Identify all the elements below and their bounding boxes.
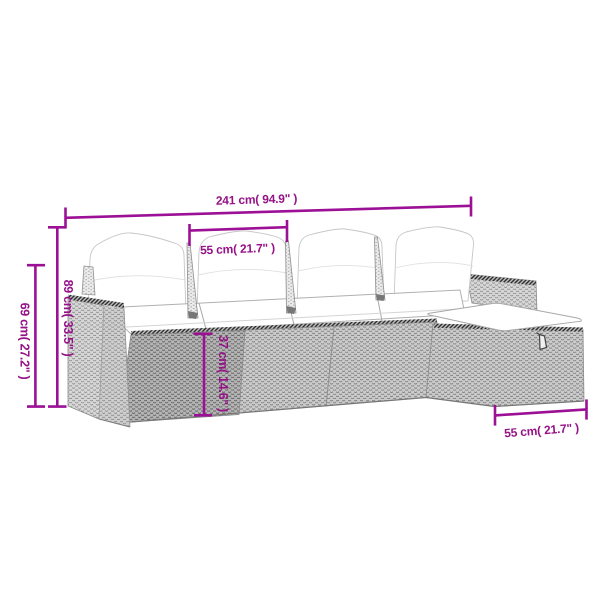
svg-text:241 cm( 94.9" ): 241 cm( 94.9" )	[216, 191, 298, 207]
svg-text:37 cm( 14.6" ): 37 cm( 14.6" )	[216, 335, 230, 412]
svg-text:55 cm( 21.7" ): 55 cm( 21.7" )	[200, 241, 276, 258]
svg-text:89 cm( 33.5" ): 89 cm( 33.5" )	[61, 280, 75, 357]
svg-text:69 cm( 27.2" ): 69 cm( 27.2" )	[18, 303, 32, 380]
